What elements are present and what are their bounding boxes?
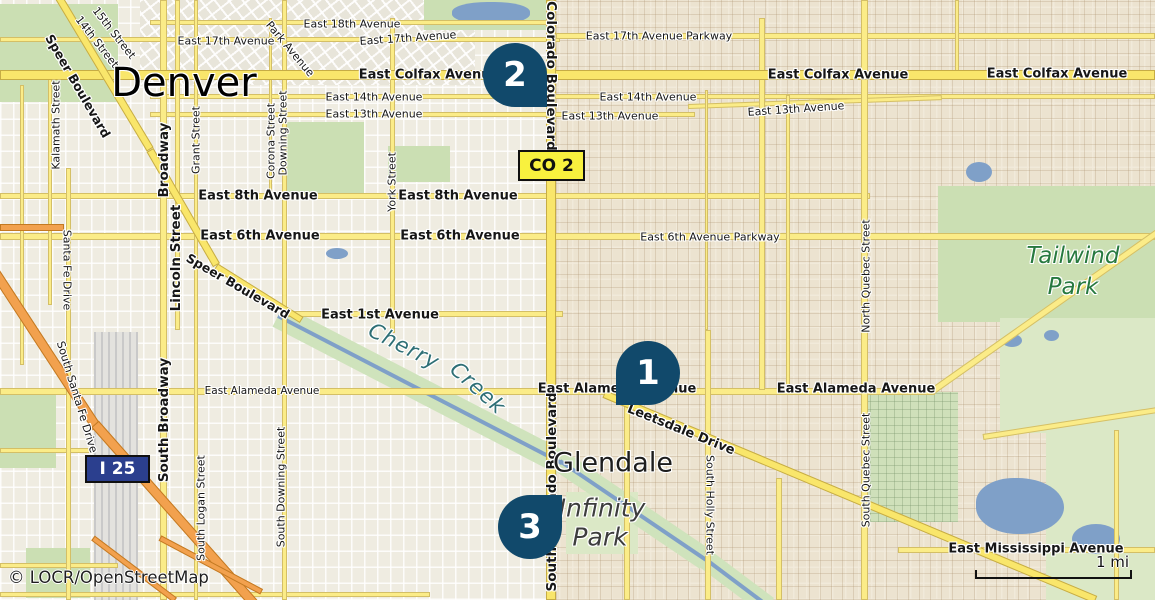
- street-label: North Quebec Street: [860, 219, 873, 332]
- road-segment: [955, 0, 959, 72]
- map-marker-3[interactable]: 3: [498, 495, 562, 559]
- road-segment: [776, 478, 782, 600]
- street-label: East Colfax Avenue: [987, 67, 1128, 82]
- street-label: Broadway: [156, 123, 172, 198]
- street-label: East Alameda Avenue: [777, 382, 936, 397]
- street-label: East Alameda Avenue: [205, 385, 320, 397]
- street-label: Lincoln Street: [168, 205, 184, 312]
- street-label: East 8th Avenue: [198, 189, 317, 204]
- street-label: East 8th Avenue: [398, 189, 517, 204]
- pond: [966, 162, 992, 182]
- street-label: Downing Street: [277, 90, 290, 175]
- street-label: East 13th Avenue: [326, 108, 423, 121]
- map-marker-1[interactable]: 1: [616, 341, 680, 405]
- scale-bar: [975, 577, 1132, 579]
- street-label: Santa Fe Drive: [61, 230, 74, 311]
- venue-label: Infinity: [559, 494, 646, 523]
- road-segment: [705, 90, 708, 330]
- marker-number: 2: [503, 55, 527, 95]
- cemetery-area: [862, 392, 958, 522]
- street-label: York Street: [386, 152, 399, 212]
- road-segment: [1114, 430, 1119, 600]
- road-segment: [0, 592, 430, 597]
- route-shield-i25: I 25: [85, 455, 150, 483]
- park-label: Tailwind: [1027, 243, 1120, 269]
- city-label: Denver: [111, 60, 257, 106]
- street-label: East Colfax Avenue: [359, 68, 500, 83]
- street-label: South Colorado Boulevard: [544, 392, 560, 591]
- park-label: Park: [1048, 274, 1099, 300]
- street-label: Grant Street: [190, 106, 203, 174]
- road-segment: [0, 448, 92, 453]
- route-shield-co2: CO 2: [518, 150, 585, 181]
- street-label: East 18th Avenue: [304, 18, 401, 31]
- street-label: South Broadway: [156, 358, 172, 482]
- street-label: East 14th Avenue: [600, 91, 697, 104]
- scale-bar-tick-left: [975, 570, 977, 579]
- street-label: South Downing Street: [275, 427, 288, 548]
- park-area: [286, 122, 364, 194]
- map-canvas[interactable]: CO 2 I 25 1 mi © LOCR/OpenStreetMap East…: [0, 0, 1155, 600]
- street-label: South Logan Street: [195, 455, 208, 561]
- street-label: South Holly Street: [704, 455, 717, 555]
- pond: [326, 248, 348, 259]
- road-segment: [786, 95, 790, 390]
- pond: [976, 478, 1064, 534]
- street-label: South Quebec Street: [860, 413, 873, 528]
- street-label: Corona Street: [265, 103, 278, 179]
- street-label: East 17th Avenue Parkway: [586, 30, 732, 43]
- street-label: East 13th Avenue: [562, 110, 659, 123]
- street-label: Kalamath Street: [50, 80, 63, 169]
- scale-bar-tick-right: [1130, 570, 1132, 579]
- motorway-segment: [0, 224, 64, 231]
- marker-number: 3: [518, 507, 542, 547]
- map-attribution: © LOCR/OpenStreetMap: [8, 568, 209, 587]
- town-label: Glendale: [553, 448, 673, 479]
- street-label: East 6th Avenue: [400, 229, 519, 244]
- street-label: East 6th Avenue Parkway: [640, 231, 779, 244]
- marker-number: 1: [636, 353, 660, 393]
- street-label: East 6th Avenue: [200, 229, 319, 244]
- street-label: East 17th Avenue: [178, 35, 275, 48]
- venue-label: Park: [572, 523, 627, 552]
- street-label: East 14th Avenue: [326, 91, 423, 104]
- map-marker-2[interactable]: 2: [483, 43, 547, 107]
- scale-label: 1 mi: [1096, 553, 1129, 571]
- street-label: East Colfax Avenue: [768, 68, 909, 83]
- park-area: [0, 390, 56, 468]
- pond: [1044, 330, 1059, 341]
